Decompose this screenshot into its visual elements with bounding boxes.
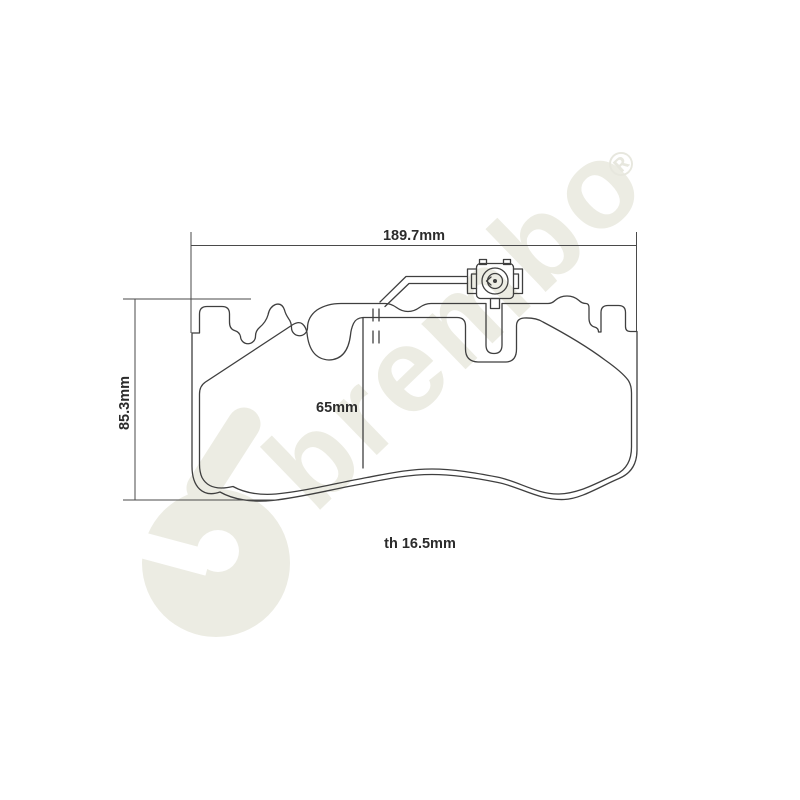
thickness-label: th 16.5mm xyxy=(384,536,456,552)
overall-width-label: 189.7mm xyxy=(383,228,445,244)
friction-height-label: 65mm xyxy=(316,400,358,416)
overall-height-label: 85.3mm xyxy=(117,376,133,430)
brembo-watermark: brembo ® xyxy=(130,106,676,637)
diagram-canvas: brembo ® xyxy=(0,0,800,800)
brake-pad-diagram: brembo ® xyxy=(0,0,800,800)
